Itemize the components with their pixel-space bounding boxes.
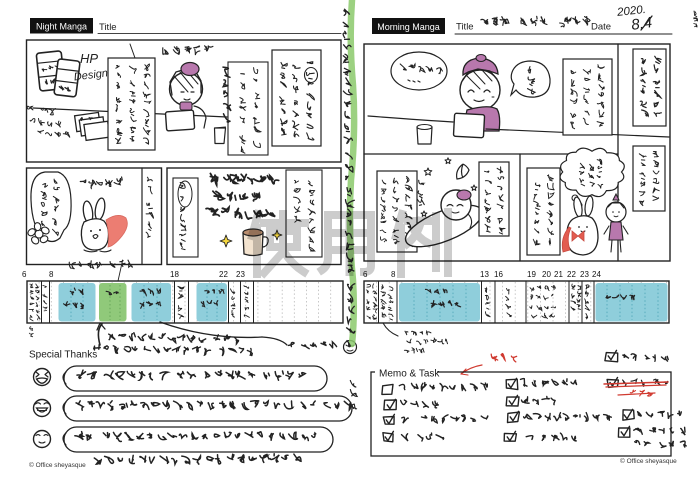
svg-text:23: 23: [236, 270, 245, 279]
svg-text:18: 18: [170, 270, 179, 279]
svg-text:Night Manga: Night Manga: [36, 22, 87, 32]
svg-text:8.4: 8.4: [630, 14, 653, 34]
svg-text:22: 22: [567, 270, 576, 279]
svg-text:© Office sheyasque: © Office sheyasque: [620, 457, 677, 465]
svg-text:23: 23: [580, 270, 589, 279]
svg-text:Date: Date: [591, 22, 611, 33]
svg-text:13: 13: [480, 270, 489, 279]
svg-text:20: 20: [542, 270, 551, 279]
svg-text:6: 6: [22, 270, 27, 279]
svg-text:22: 22: [219, 270, 228, 279]
svg-text:HP: HP: [80, 51, 98, 66]
svg-text:Memo & Task: Memo & Task: [379, 369, 440, 380]
svg-text:Title: Title: [99, 22, 117, 33]
svg-text:8: 8: [391, 270, 396, 279]
svg-text:19: 19: [527, 270, 536, 279]
svg-text:Special Thanks: Special Thanks: [29, 350, 97, 361]
svg-text:21: 21: [554, 270, 563, 279]
svg-text:© Office sheyasque: © Office sheyasque: [29, 461, 86, 469]
svg-text:24: 24: [592, 270, 601, 279]
svg-text:16: 16: [494, 270, 503, 279]
svg-text:Title: Title: [456, 22, 474, 33]
svg-text:8: 8: [49, 270, 54, 279]
svg-text:Morning Manga: Morning Manga: [377, 22, 440, 32]
